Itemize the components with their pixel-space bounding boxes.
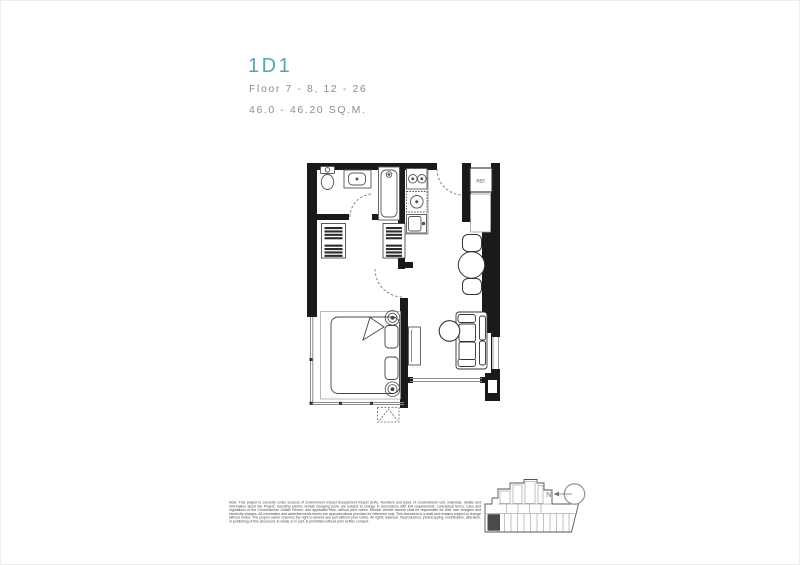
dining-chair-top	[463, 235, 482, 252]
refrigerator-label: REF.	[476, 179, 485, 184]
pillow	[385, 326, 398, 349]
corner-window	[488, 380, 497, 393]
sofa	[456, 312, 487, 369]
disclaimer-text: Note: This project is currently under pr…	[229, 501, 481, 524]
floorplan-drawing: REF.	[301, 149, 511, 433]
floor-range: Floor 7 - 8, 12 - 26	[249, 84, 367, 95]
dining-table	[458, 252, 484, 278]
bathtub	[379, 167, 400, 220]
entrance-door-arc	[437, 169, 463, 195]
unit-highlight	[488, 514, 501, 531]
keyplan: N	[479, 473, 595, 549]
bathroom-door-arc	[350, 194, 373, 217]
bathroom	[321, 167, 400, 221]
right-window	[492, 337, 500, 369]
north-label: N	[546, 490, 551, 499]
stove	[407, 169, 428, 190]
north-arrow-icon	[554, 492, 560, 497]
toilet	[321, 167, 335, 190]
wardrobes	[322, 224, 406, 259]
bedroom	[321, 311, 401, 400]
living	[409, 312, 488, 369]
entry-counter	[471, 194, 491, 232]
ac-unit	[378, 408, 400, 423]
tv-console	[409, 327, 421, 365]
coffee-table	[439, 321, 460, 342]
kitchen-sink	[407, 215, 427, 234]
bedroom-door-arc	[375, 269, 403, 297]
disclaimer: Note: This project is currently under pr…	[229, 501, 481, 535]
area-range: 46.0 - 46.20 SQ.M.	[249, 105, 367, 116]
floorplan-page: 1D1 Floor 7 - 8, 12 - 26 46.0 - 46.20 SQ…	[0, 0, 800, 565]
kitchen	[405, 169, 428, 235]
unit-code: 1D1	[248, 56, 292, 76]
bathroom-sink	[344, 170, 371, 188]
dining	[458, 235, 484, 295]
washing-machine	[407, 192, 428, 213]
pillow	[385, 357, 398, 380]
entry: REF.	[470, 168, 492, 232]
dining-chair-bottom	[463, 279, 482, 295]
